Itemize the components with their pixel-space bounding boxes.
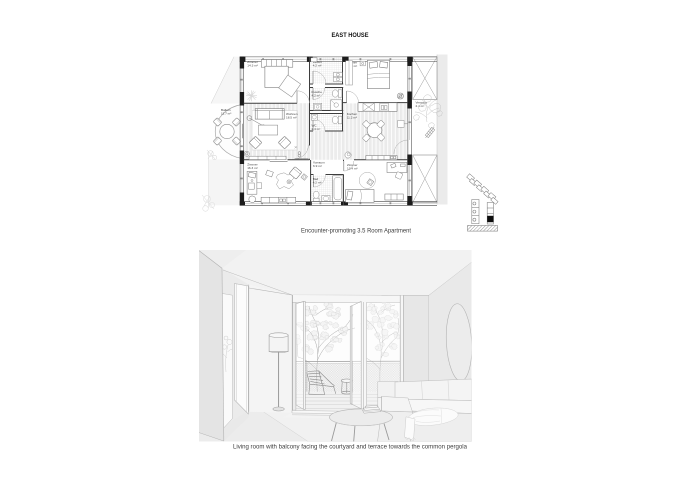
svg-text:EAST HOUSE: EAST HOUSE	[332, 32, 369, 39]
svg-text:Living room with balcony facin: Living room with balcony facing the cour…	[233, 444, 467, 451]
svg-text:Zimmer13.4 m²: Zimmer13.4 m²	[347, 163, 358, 171]
svg-text:Kochen11.2 m²: Kochen11.2 m²	[347, 112, 358, 120]
svg-text:Encounter-promoting 3.5 Room A: Encounter-promoting 3.5 Room Apartment	[301, 227, 411, 234]
svg-text:Veranda2.4 m²: Veranda2.4 m²	[416, 101, 428, 109]
svg-text:Vorraum6.9 m²: Vorraum6.9 m²	[313, 160, 325, 168]
svg-text:Zimmer14.3 m²: Zimmer14.3 m²	[247, 60, 257, 68]
svg-text:Wohnen18.5 m²: Wohnen18.5 m²	[286, 112, 298, 120]
svg-text:Zimmer16.3 m²: Zimmer16.3 m²	[247, 163, 258, 171]
svg-text:Balkon11.7 m²: Balkon11.7 m²	[221, 108, 231, 116]
